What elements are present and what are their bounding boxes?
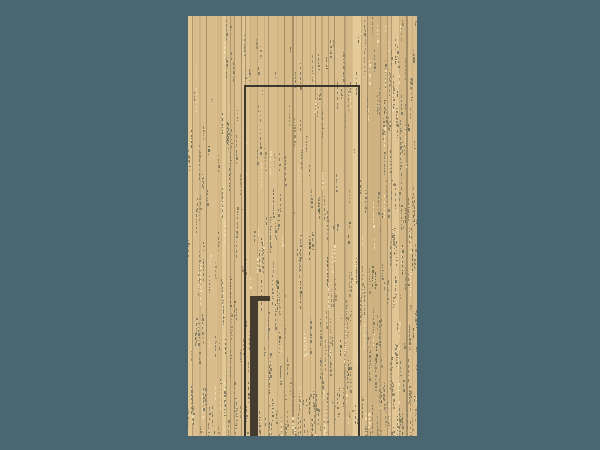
scene-background <box>0 0 600 450</box>
wood-wall <box>188 16 417 436</box>
door-handle-bar[interactable] <box>250 296 258 436</box>
door-handle-top[interactable] <box>250 296 270 301</box>
door-frame-outline[interactable] <box>244 85 360 436</box>
